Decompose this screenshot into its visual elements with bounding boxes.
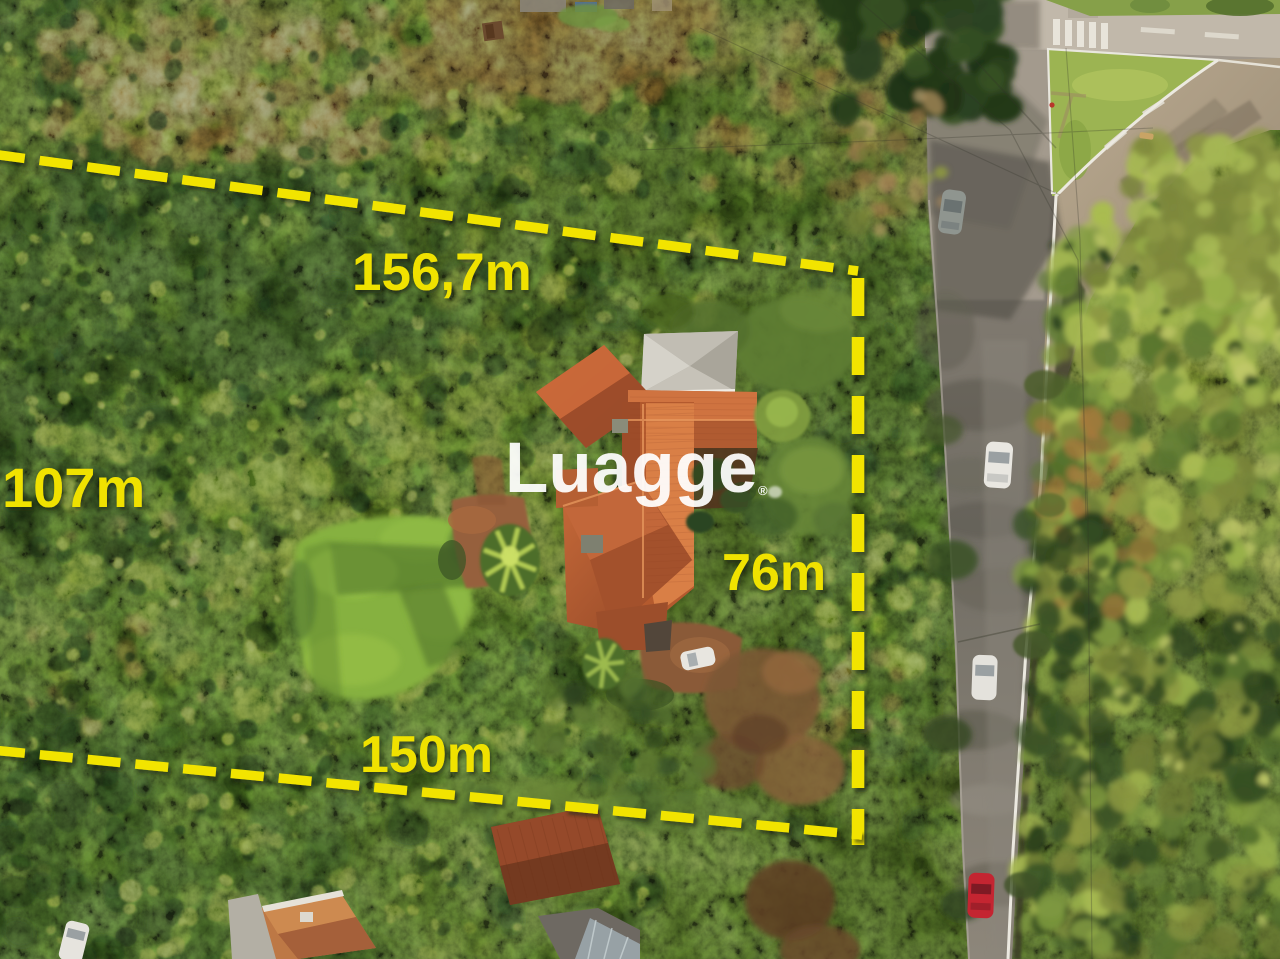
svg-text:Luagge: Luagge — [505, 429, 757, 508]
svg-text:®: ® — [758, 483, 768, 498]
svg-text:107m: 107m — [2, 456, 145, 519]
svg-text:156,7m: 156,7m — [352, 243, 532, 302]
svg-text:150m: 150m — [360, 726, 493, 784]
svg-text:76m: 76m — [722, 544, 826, 602]
